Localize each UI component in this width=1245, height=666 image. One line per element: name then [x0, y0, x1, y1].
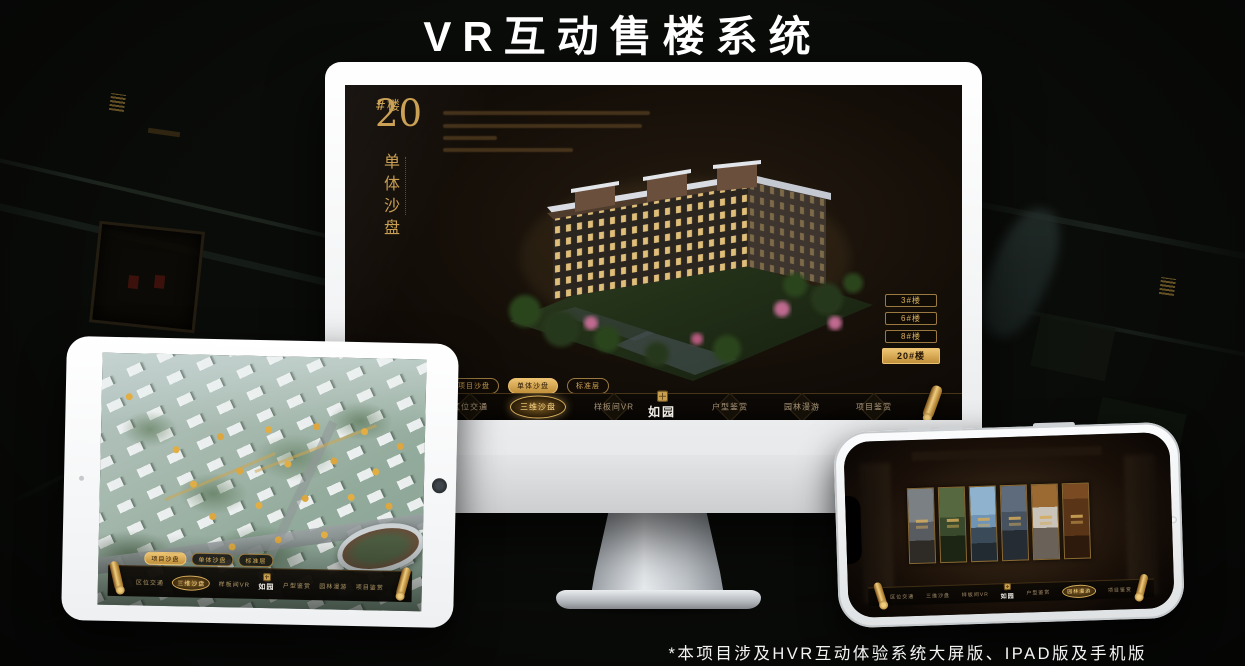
power-button[interactable]	[1033, 422, 1075, 428]
monitor-stand-neck	[591, 513, 724, 595]
scroll-icon[interactable]	[395, 566, 412, 597]
page-title: VR互动售楼系统	[0, 3, 1245, 64]
tab-single-sandbox[interactable]: 单体沙盘	[191, 553, 233, 567]
tab-project-sandbox[interactable]: 项目沙盘	[144, 552, 186, 566]
menu-item-location-traffic[interactable]: 区位交通	[136, 577, 164, 587]
framed-sign	[89, 221, 205, 334]
menu-item-garden-tour[interactable]: 园林漫游	[1062, 584, 1096, 598]
menu-item-3d-sandbox[interactable]: 三维沙盘	[172, 575, 210, 591]
menu-item-unit-appreciation[interactable]: 户型鉴赏	[283, 580, 311, 590]
footnote-text: *本项目涉及HVR互动体验系统大屏版、IPAD版及手机版	[668, 640, 1147, 664]
menu-item-project-appreciation[interactable]: 项目鉴赏	[1108, 586, 1132, 594]
tab-standard-floor[interactable]: 标准层	[238, 554, 273, 568]
brand-logo: 如园	[648, 391, 676, 420]
phone-notch	[845, 496, 862, 564]
brand-logo: 如园	[258, 572, 274, 591]
scene-panel[interactable]	[1062, 482, 1091, 559]
tablet-camera-icon	[79, 476, 84, 481]
map-label-mark	[1159, 277, 1176, 296]
scene-panel[interactable]	[1031, 483, 1060, 560]
brand-logo-text: 如园	[648, 403, 676, 420]
menu-item-3d-sandbox[interactable]: 三维沙盘	[926, 591, 950, 599]
tablet-menu-bar: 区位交通 三维沙盘 样板间VR 如园 户型鉴赏 园林漫游 项目鉴赏	[108, 565, 413, 602]
monitor-stand-base	[556, 590, 761, 609]
menu-item-model-room-vr[interactable]: 样板间VR	[219, 579, 251, 589]
phone-device: 区位交通 三维沙盘 样板间VR 如园 户型鉴赏 园林漫游 项目鉴赏	[833, 422, 1185, 629]
tablet-screen: 项目沙盘 单体沙盘 标准层 区位交通 三维沙盘 样板间VR 如园 户型鉴赏 园林…	[97, 353, 426, 612]
menu-item-project-appreciation[interactable]: 项目鉴赏	[356, 582, 384, 592]
scroll-icon[interactable]	[109, 560, 124, 591]
phone-screen: 区位交通 三维沙盘 样板间VR 如园 户型鉴赏 园林漫游 项目鉴赏	[843, 432, 1174, 618]
tablet-device: 项目沙盘 单体沙盘 标准层 区位交通 三维沙盘 样板间VR 如园 户型鉴赏 园林…	[61, 336, 459, 628]
menu-item-model-room-vr[interactable]: 样板间VR	[962, 590, 989, 598]
menu-item-unit-appreciation[interactable]: 户型鉴赏	[1026, 588, 1050, 596]
map-label-mark	[109, 93, 126, 112]
brand-logo-text: 如园	[1000, 590, 1014, 599]
scene-panel[interactable]	[938, 486, 967, 563]
menu-item-location-traffic[interactable]: 区位交通	[890, 593, 914, 601]
brand-logo: 如园	[1000, 582, 1015, 599]
promo-stage: VR互动售楼系统 20#楼 单体沙盘	[0, 0, 1245, 666]
scene-panel[interactable]	[907, 487, 936, 564]
brand-logo-text: 如园	[258, 581, 274, 591]
building-number-badges[interactable]	[126, 393, 133, 400]
scene-panel[interactable]	[969, 485, 998, 562]
menu-item-garden-tour[interactable]: 园林漫游	[319, 581, 347, 591]
seal-logo-icon	[263, 573, 271, 581]
seal-logo-icon	[1004, 582, 1011, 589]
seal-logo-icon	[656, 391, 667, 402]
tablet-view-tab-group: 项目沙盘 单体沙盘 标准层	[144, 552, 273, 568]
volume-button[interactable]	[907, 426, 931, 432]
scene-panel[interactable]	[1000, 484, 1029, 561]
scene-panel-row	[907, 482, 1091, 564]
tablet-home-button[interactable]	[432, 478, 447, 493]
volume-button[interactable]	[939, 425, 963, 431]
